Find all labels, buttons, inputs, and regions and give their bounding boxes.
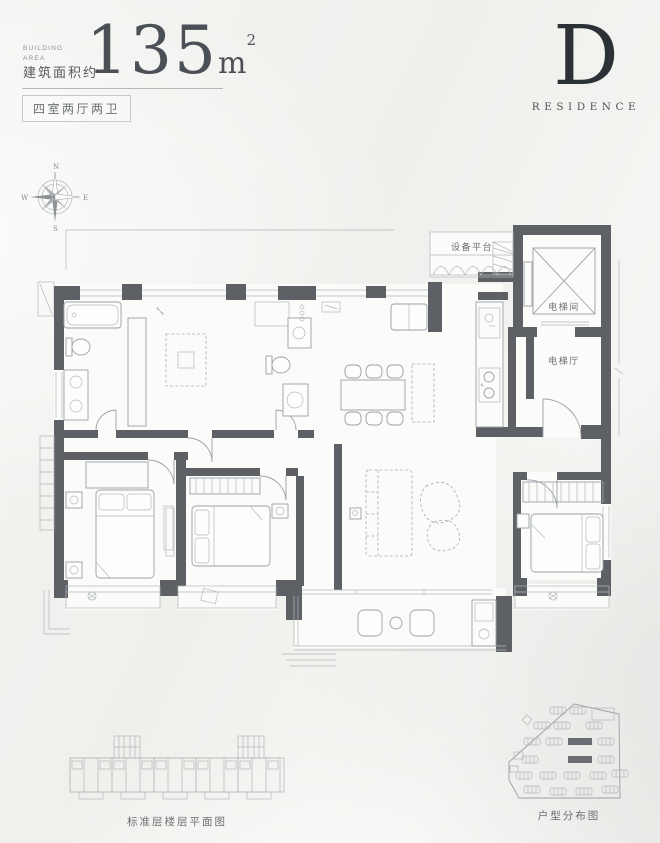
building-area-label-en: BUILDING AREA (23, 44, 63, 64)
elevator-hall-label: 电梯厅 (548, 355, 580, 366)
area-value: 135m2 (86, 18, 256, 84)
equipment-platform-label: 设备平台 (451, 241, 493, 252)
brand-name: RESIDENCE (530, 101, 642, 113)
compass-e: E (83, 194, 88, 202)
site-buildings (510, 707, 628, 795)
compass-w: W (21, 194, 29, 202)
compass-n: N (53, 163, 59, 171)
layout-tag: 四室两厅两卫 (22, 95, 131, 122)
listing-floorplan-page: BUILDING AREA 建筑面积约 135m2 四室两厅两卫 D RESID… (0, 0, 660, 843)
compass-star (30, 172, 80, 222)
site-map (494, 694, 644, 806)
brand-block: D RESIDENCE (530, 16, 642, 113)
highlighted-unit (568, 756, 592, 763)
floor-plate-caption: 标准层楼层平面图 (62, 814, 292, 829)
highlighted-unit (568, 738, 592, 745)
floor-plate-diagram (62, 720, 292, 812)
elevator-room-label: 电梯间 (548, 301, 580, 312)
brand-letter: D (530, 16, 642, 98)
site-map-caption: 户型分布图 (494, 808, 644, 823)
floor-plan: 设备平台 电梯间 电梯厅 (36, 222, 636, 687)
header-divider (22, 88, 223, 89)
